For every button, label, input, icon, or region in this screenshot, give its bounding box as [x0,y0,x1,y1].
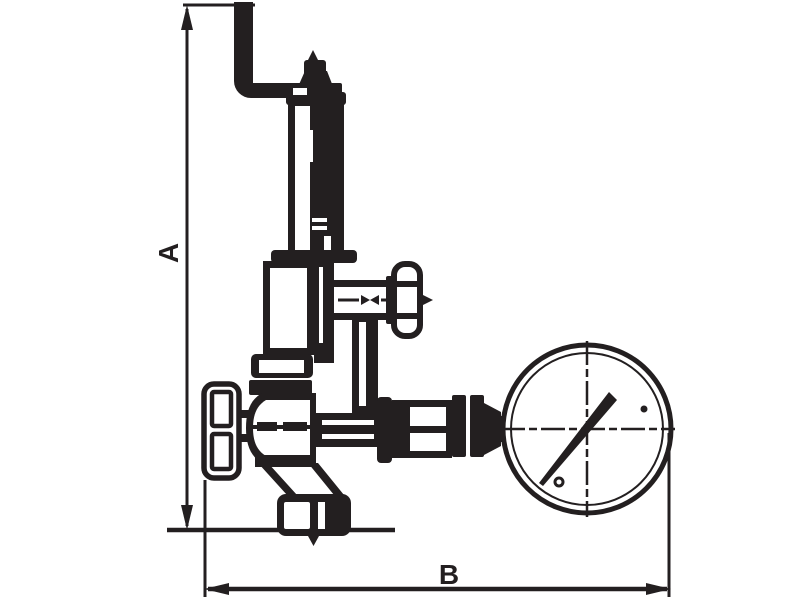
gauge-dot-lower [555,478,563,486]
technical-drawing-canvas: A [0,0,800,598]
body-connector-interior [259,360,304,373]
tube-rod-gap [310,130,313,162]
tube-thread-slit-2 [312,226,327,230]
spring-tube [288,98,344,256]
body-top-bar [249,380,312,395]
fitting-collar [392,400,404,458]
gauge-dot-upper [641,406,648,413]
dim-b-arrow-left-icon [204,583,229,595]
housing-chamber-interior [270,268,307,348]
housing-column [314,259,334,363]
housing-column-slit [319,267,323,343]
tube-lower-slit [324,236,331,252]
handwheel [204,384,252,478]
pressure-gauge [501,341,675,517]
dim-a-arrow-up-icon [181,5,193,30]
outlet-nut-slit [318,502,325,529]
dim-a-arrow-down-icon [181,505,193,530]
tube-inner-channel [295,106,310,250]
fitting-taper [484,403,501,455]
cap-slot [293,88,307,95]
dimension-b-label: B [439,559,459,590]
fitting-nut-2 [470,395,484,457]
down-pipe-slit [359,322,366,406]
dimension-a-label: A [153,243,184,263]
dim-b-arrow-right-icon [646,583,671,595]
valve-with-gauge-drawing: A [0,0,800,598]
t-handle-shaft-lower [396,313,418,319]
gauge-fittings [316,395,507,463]
fitting-cross-block [316,413,380,447]
side-port-valve [334,264,433,336]
fitting-barrel-face-bottom [410,433,446,451]
handwheel-spoke-bottom [212,434,231,469]
handwheel-spoke-top [212,392,231,426]
fitting-cross-slit-2 [322,434,374,439]
body-taper-right [308,463,344,495]
fitting-cross-slit-1 [322,420,374,425]
body-centerline-mark-1 [257,422,277,431]
t-handle [394,264,420,336]
outlet-drip-tip [308,536,319,546]
body-centerline-mark-2 [283,422,307,431]
t-handle-tip [421,294,433,306]
fitting-nut-1 [452,395,466,457]
fitting-flange [377,397,392,463]
t-handle-shaft-upper [396,281,418,287]
body-taper-left [258,463,297,495]
adjusting-cap [286,50,346,105]
tube-thread-slit-1 [312,218,327,222]
outlet-fitting [277,494,351,546]
outlet-nut-face [284,502,310,529]
fitting-barrel-face-top [410,407,446,426]
